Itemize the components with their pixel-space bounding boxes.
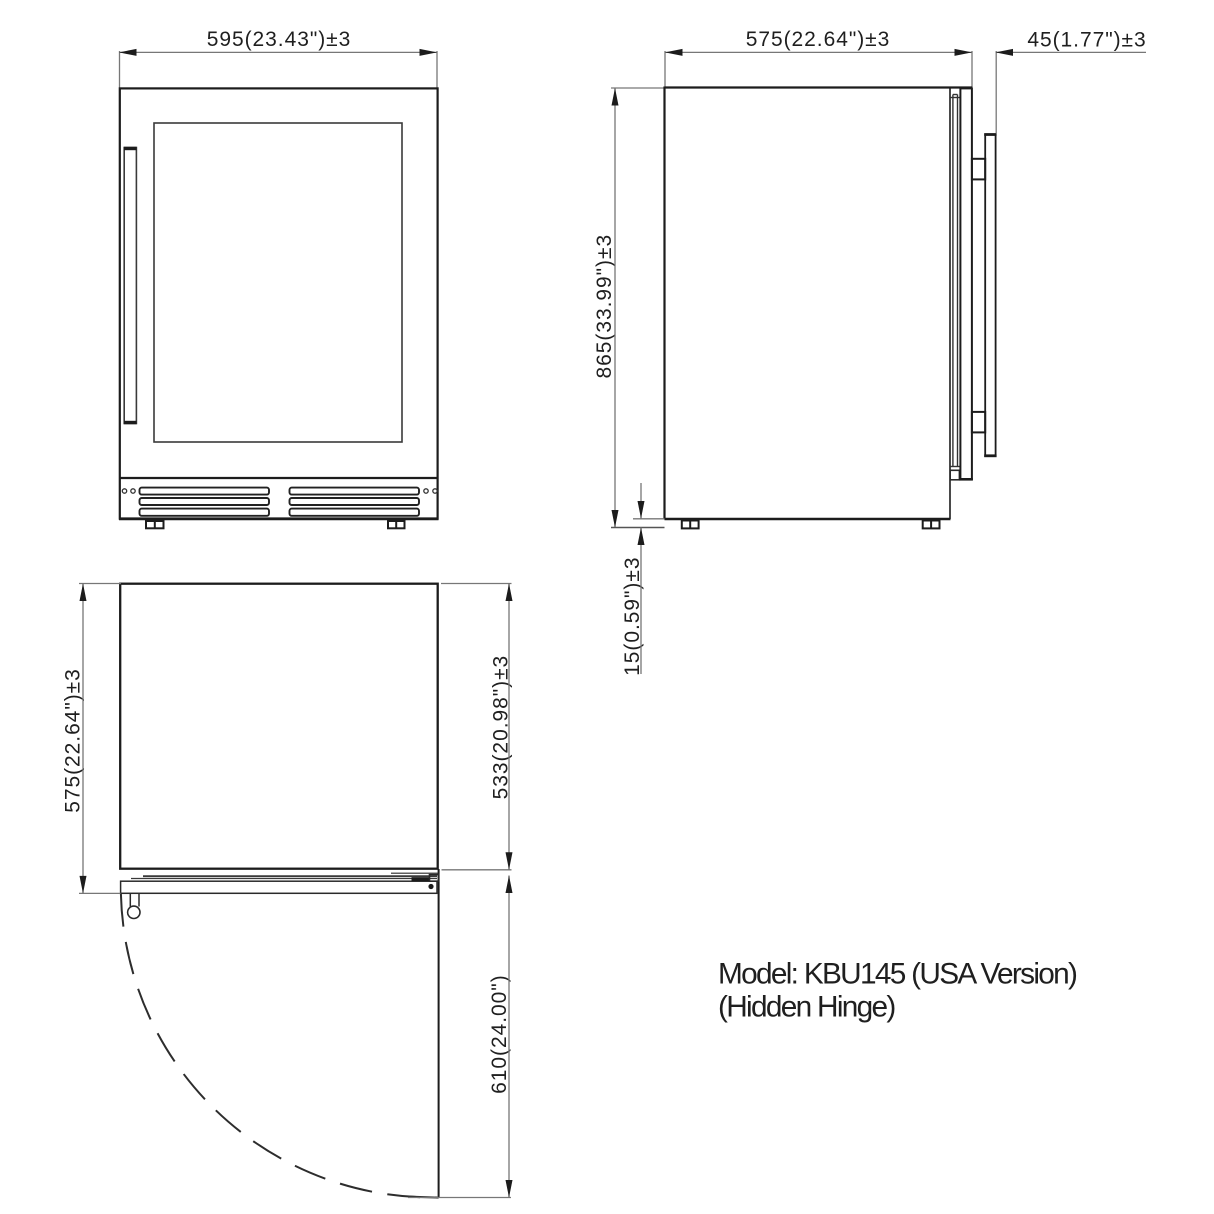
svg-text:595(23.43")±3: 595(23.43")±3 xyxy=(207,28,352,51)
svg-text:(Hidden Hinge): (Hidden Hinge) xyxy=(718,991,895,1024)
svg-text:610(24.00"): 610(24.00") xyxy=(488,974,511,1093)
svg-text:575(22.64")±3: 575(22.64")±3 xyxy=(62,668,85,813)
svg-text:45(1.77")±3: 45(1.77")±3 xyxy=(1027,29,1146,52)
svg-text:Model: KBU145 (USA Version): Model: KBU145 (USA Version) xyxy=(718,957,1077,990)
svg-text:865(33.99")±3: 865(33.99")±3 xyxy=(593,234,616,379)
svg-text:575(22.64")±3: 575(22.64")±3 xyxy=(746,28,891,51)
